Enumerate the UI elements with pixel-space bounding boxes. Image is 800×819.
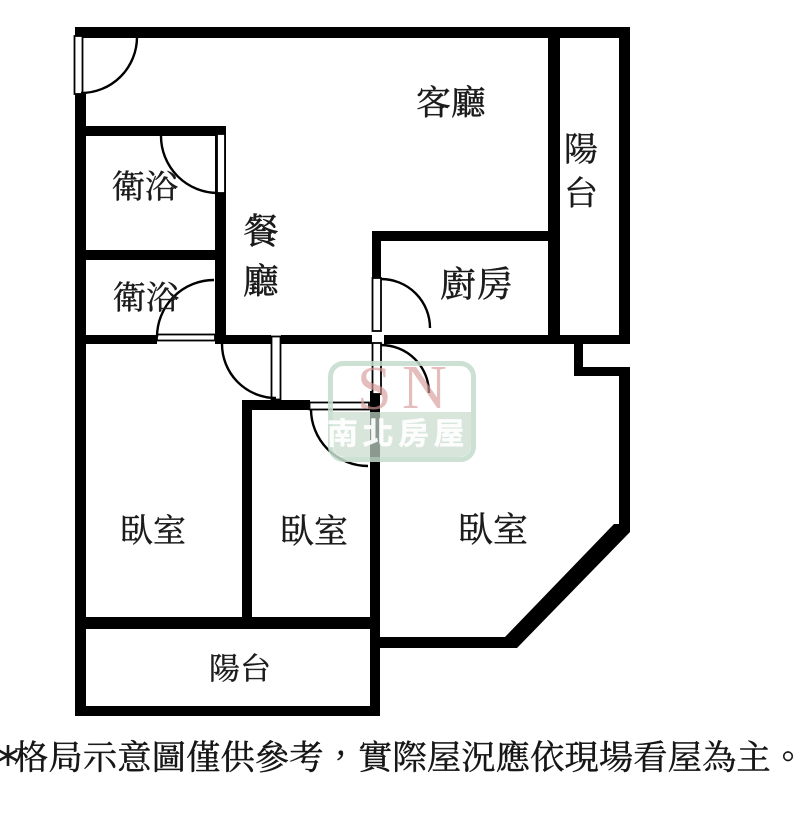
svg-text:S: S: [357, 355, 391, 423]
svg-text:N: N: [402, 354, 447, 422]
